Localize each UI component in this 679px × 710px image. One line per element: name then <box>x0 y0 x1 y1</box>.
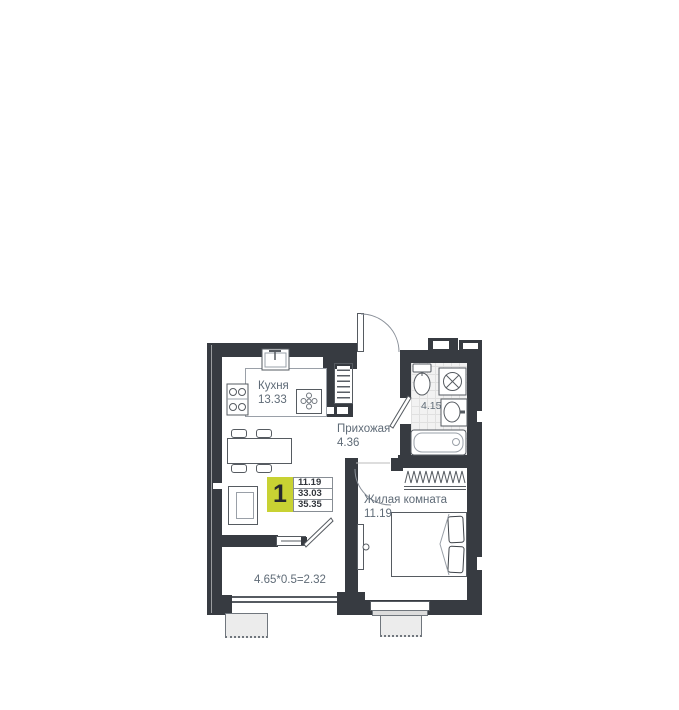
entrance-door-leaf <box>357 313 364 352</box>
hallway-wardrobe <box>334 363 353 404</box>
hallway-name: Прихожая <box>337 423 390 437</box>
bathroom-area: 4.15 <box>421 400 441 413</box>
tv-console <box>357 524 364 570</box>
floor-plan: Кухня 13.33 Прихожая 4.36 4.15 Жилая ком… <box>0 0 679 710</box>
wall-bathroom-left-upper <box>400 363 411 398</box>
vent-shaft-left-inset <box>433 341 449 349</box>
living-room-label: Жилая комната 11.19 <box>364 494 447 522</box>
vent-shaft-right-inset <box>463 343 478 349</box>
wall-seam-left <box>211 345 212 613</box>
shoe-cabinet-inset-left <box>326 407 334 414</box>
hallway-label: Прихожая 4.36 <box>337 423 390 451</box>
chair <box>231 429 247 438</box>
chair <box>256 464 272 473</box>
balcony-door-leaf <box>304 518 333 547</box>
balcony-ac-basket <box>225 613 268 638</box>
wall-bathroom-left-lower <box>400 424 411 458</box>
balcony-area-formula: 4.65*0.5=2.32 <box>254 574 326 588</box>
living-ac-basket <box>380 615 422 637</box>
wall-living-top-right <box>391 458 403 471</box>
floor-plan-page: { "rooms": { "kitchen": { "name": "Кухня… <box>0 0 679 710</box>
entrance-door-arc <box>361 314 399 352</box>
wall-notch-right-lower <box>477 557 484 570</box>
kitchen-name: Кухня <box>258 380 289 394</box>
badge-total-area: 35.35 <box>293 499 333 512</box>
dining-table <box>227 438 292 464</box>
pillow <box>447 516 464 544</box>
hallway-area: 4.36 <box>337 437 390 451</box>
shoe-cabinet-inset-right <box>337 407 348 414</box>
wall-notch-right-upper <box>477 411 484 422</box>
living-room-name: Жилая комната <box>364 494 447 508</box>
chair <box>231 464 247 473</box>
kitchen-area: 13.33 <box>258 394 289 408</box>
chair <box>256 429 272 438</box>
bathroom-label: 4.15 <box>421 400 441 413</box>
balcony-door-stop <box>301 537 307 545</box>
wall-outer-left <box>207 343 222 615</box>
balcony-glazing <box>222 596 345 603</box>
wall-pillar-balcony-living <box>337 592 365 615</box>
pillow <box>447 546 464 574</box>
wall-outer-right <box>467 350 482 615</box>
balcony-label: 4.65*0.5=2.32 <box>254 574 326 588</box>
wall-bathroom-bottom <box>398 455 482 468</box>
cooktop-box <box>296 389 322 414</box>
wardrobe-hangers-icon <box>404 471 466 490</box>
living-room-area: 11.19 <box>364 508 447 522</box>
wall-notch-left <box>213 483 222 489</box>
room-count-badge: 1 <box>267 477 293 512</box>
wall-kitchen-balcony <box>222 535 278 547</box>
armchair-seat <box>236 492 254 519</box>
kitchen-label: Кухня 13.33 <box>258 380 289 408</box>
